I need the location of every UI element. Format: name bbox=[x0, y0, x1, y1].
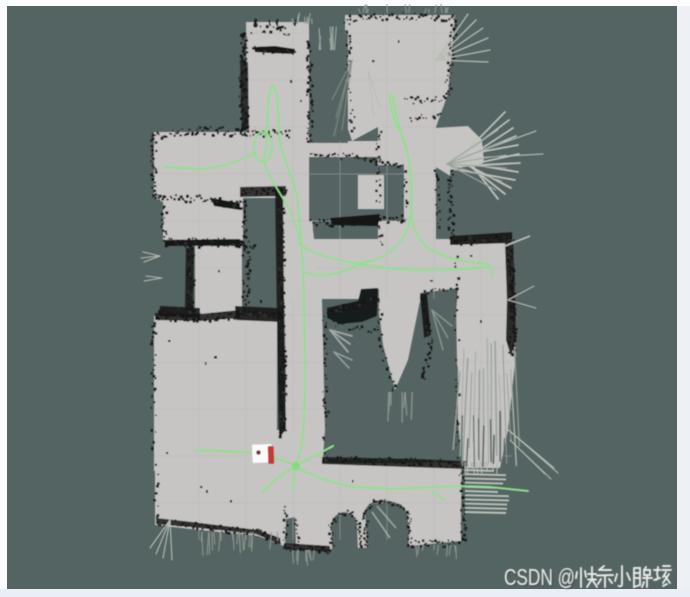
svg-text:CSDN @: CSDN @ bbox=[504, 564, 575, 590]
